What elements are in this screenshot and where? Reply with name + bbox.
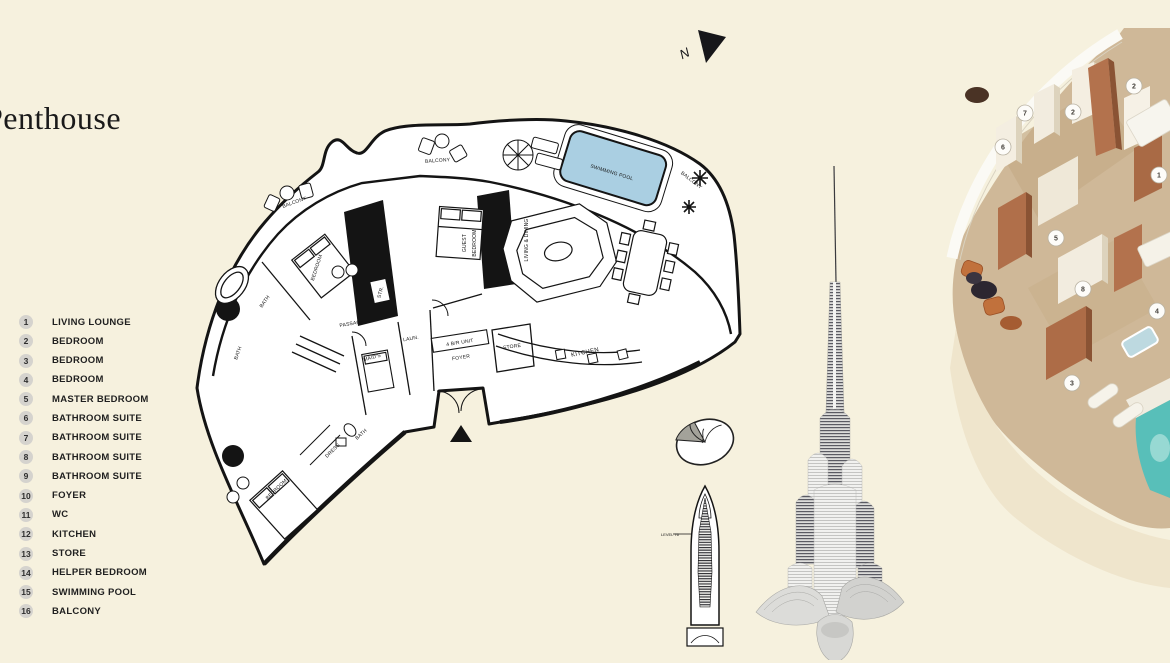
render-badge-label: 5 xyxy=(1054,236,1058,243)
legend-item-label: KITCHEN xyxy=(52,529,96,540)
tower-level-icon: LEVEL 76 xyxy=(660,482,735,657)
legend-item: 6BATHROOM SUITE xyxy=(19,411,149,425)
north-label: N xyxy=(677,44,692,62)
legend-item-label: STORE xyxy=(52,548,86,559)
legend-item-label: BEDROOM xyxy=(52,355,104,366)
label-living-dining: LIVING & DINING xyxy=(524,218,530,261)
legend-item: 7BATHROOM SUITE xyxy=(19,431,149,445)
legend-number-badge: 3 xyxy=(19,354,33,368)
legend-item-label: MASTER BEDROOM xyxy=(52,394,149,405)
legend-item-label: BATHROOM SUITE xyxy=(52,452,142,463)
render-badge-label: 3 xyxy=(1070,381,1074,388)
legend-item-label: SWIMMING POOL xyxy=(52,587,136,598)
legend-item: 1LIVING LOUNGE xyxy=(19,315,149,329)
page: { "page": { "bg": "#f6f1de" }, "header":… xyxy=(0,0,1170,663)
legend-item: 12KITCHEN xyxy=(19,527,149,541)
render-badge-label: 2 xyxy=(1071,110,1075,117)
legend-item-label: BATHROOM SUITE xyxy=(52,471,142,482)
apartment-3d-render: 7 6 2 2 1 5 8 4 3 xyxy=(938,28,1170,588)
legend-number-badge: 5 xyxy=(19,392,33,406)
render-badge-label: 8 xyxy=(1081,287,1085,294)
room-legend: 1LIVING LOUNGE 2BEDROOM 3BEDROOM 4BEDROO… xyxy=(19,315,149,624)
legend-item: 15SWIMMING POOL xyxy=(19,585,149,599)
entrance-arrow-icon xyxy=(450,425,472,442)
render-badge-label: 1 xyxy=(1157,173,1161,180)
render-badge-label: 4 xyxy=(1155,309,1159,316)
legend-item-label: BALCONY xyxy=(52,606,101,617)
legend-number-badge: 7 xyxy=(19,431,33,445)
legend-number-badge: 12 xyxy=(19,527,33,541)
page-title: Penthouse xyxy=(0,100,121,137)
render-badge-label: 2 xyxy=(1132,84,1136,91)
label-guest-1: GUEST xyxy=(462,234,468,252)
render-badge-label: 7 xyxy=(1023,111,1027,118)
legend-number-badge: 10 xyxy=(19,489,33,503)
legend-item: 5MASTER BEDROOM xyxy=(19,392,149,406)
legend-number-badge: 4 xyxy=(19,373,33,387)
legend-number-badge: 11 xyxy=(19,508,33,522)
legend-number-badge: 14 xyxy=(19,566,33,580)
label-guest-2: BEDROOM xyxy=(472,229,478,256)
render-badge-label: 6 xyxy=(1001,145,1005,152)
legend-item: 2BEDROOM xyxy=(19,334,149,348)
legend-number-badge: 8 xyxy=(19,450,33,464)
legend-item: 14HELPER BEDROOM xyxy=(19,566,149,580)
legend-number-badge: 9 xyxy=(19,469,33,483)
legend-item-label: BATHROOM SUITE xyxy=(52,432,142,443)
key-plan xyxy=(668,412,743,474)
burj-khalifa-illustration xyxy=(750,160,910,660)
legend-item-label: BEDROOM xyxy=(52,374,104,385)
legend-item-label: WC xyxy=(52,509,68,520)
north-triangle xyxy=(698,30,726,63)
legend-item: 4BEDROOM xyxy=(19,373,149,387)
legend-item-label: BATHROOM SUITE xyxy=(52,413,142,424)
legend-item: 11WC xyxy=(19,508,149,522)
legend-number-badge: 15 xyxy=(19,585,33,599)
legend-item: 8BATHROOM SUITE xyxy=(19,450,149,464)
legend-number-badge: 13 xyxy=(19,547,33,561)
tower-spire xyxy=(834,166,836,282)
legend-number-badge: 1 xyxy=(19,315,33,329)
legend-item-label: FOYER xyxy=(52,490,86,501)
legend-item-label: BEDROOM xyxy=(52,336,104,347)
plan-black-circle-2 xyxy=(222,445,244,467)
legend-item: 9BATHROOM SUITE xyxy=(19,469,149,483)
north-arrow-icon: N xyxy=(668,20,738,75)
umbrella-icon xyxy=(503,140,533,170)
legend-item: 13STORE xyxy=(19,547,149,561)
legend-item-label: HELPER BEDROOM xyxy=(52,567,147,578)
legend-item: 16BALCONY xyxy=(19,604,149,618)
legend-item: 3BEDROOM xyxy=(19,354,149,368)
legend-item: 10FOYER xyxy=(19,489,149,503)
tower-base xyxy=(687,628,723,646)
legend-number-badge: 16 xyxy=(19,604,33,618)
tower-level-label: LEVEL 76 xyxy=(661,532,680,537)
legend-item-label: LIVING LOUNGE xyxy=(52,317,131,328)
legend-number-badge: 2 xyxy=(19,334,33,348)
legend-number-badge: 6 xyxy=(19,411,33,425)
